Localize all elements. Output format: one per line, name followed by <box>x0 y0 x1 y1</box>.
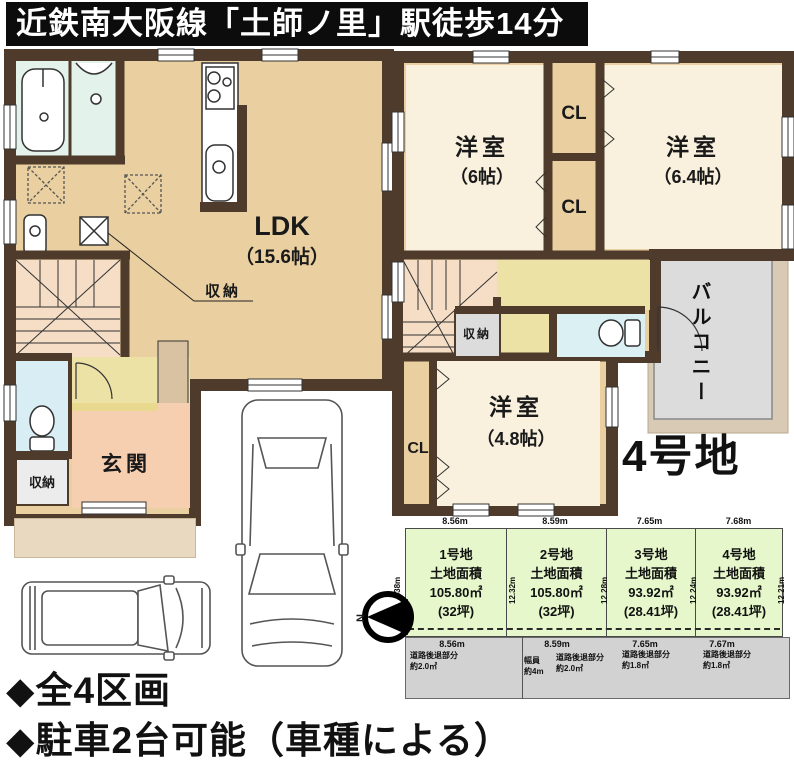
lot4-road-width: 7.67m <box>692 639 752 649</box>
lot1-front-width: 8.56m <box>405 516 505 527</box>
storage-label-2f: 収納 <box>463 326 491 341</box>
lot-map: 1号地 土地面積 105.80㎡ (32坪) 2号地 土地面積 105.80㎡ … <box>405 528 783 637</box>
lot3-road-width: 7.65m <box>615 639 675 649</box>
lot4-area-title: 土地面積 <box>713 567 765 580</box>
lot1-road-width: 8.56m <box>422 639 482 649</box>
lot2-name: 2号地 <box>540 548 573 561</box>
lot2-tsubo: (32坪) <box>538 605 574 618</box>
lot-1: 1号地 土地面積 105.80㎡ (32坪) <box>406 529 506 636</box>
compass-north-label: N <box>355 614 367 622</box>
ldk-size-label: （15.6帖） <box>235 245 329 268</box>
hall-2f <box>497 260 650 310</box>
entrance-storage-label: 収納 <box>29 475 55 490</box>
bathtub-icon <box>22 69 64 151</box>
lot3-depth: 12.24m <box>689 577 698 604</box>
balcony-label: バルコニー <box>684 264 714 422</box>
lot2-area: 105.80㎡ <box>530 586 583 599</box>
compass-icon: N <box>358 588 416 646</box>
toilet-icon <box>30 406 54 451</box>
bedroom-4-8-label: 洋室 <box>489 394 543 420</box>
closet-top-label: CL <box>561 103 587 124</box>
lot1-depth: 12.32m <box>508 577 517 604</box>
title-banner: 近鉄南大阪線「土師ノ里」駅徒歩14分 <box>6 2 588 46</box>
vanity-icon <box>24 215 46 255</box>
footer-parking-note: ◆駐車2台可能（車種による） <box>6 710 512 764</box>
lot1-tsubo: (32坪) <box>438 605 474 618</box>
lot4-tsubo: (28.41坪) <box>712 605 766 618</box>
car-vertical-icon <box>236 396 348 670</box>
lot3-tsubo: (28.41坪) <box>624 605 678 618</box>
kitchen-counter <box>200 63 242 207</box>
lot1-area-title: 土地面積 <box>430 567 482 580</box>
lot-4: 4号地 土地面積 93.92㎡ (28.41坪) <box>695 529 782 636</box>
toilet-2f-icon <box>599 320 640 346</box>
lot3-area-title: 土地面積 <box>625 567 677 580</box>
lot2-depth: 12.28m <box>600 577 609 604</box>
road-divider-line <box>522 637 523 699</box>
entrance-label: 玄関 <box>101 452 151 476</box>
footer-lot-count: ◆全4区画 <box>6 660 171 714</box>
closet-box-icon <box>80 217 108 245</box>
road-width-note: 幅員約4m <box>524 656 544 678</box>
lot3-setback: 道路後退部分約1.8㎡ <box>622 650 670 672</box>
bedroom-6-4-size: （6.4帖） <box>653 166 732 187</box>
lot2-front-width: 8.59m <box>505 516 605 527</box>
lot2-road-width: 8.59m <box>527 639 587 649</box>
closet-mid-label: CL <box>561 197 587 218</box>
lot3-front-width: 7.65m <box>605 516 694 527</box>
setback-dashed-line <box>408 628 780 630</box>
lot-2: 2号地 土地面積 105.80㎡ (32坪) <box>506 529 606 636</box>
bedroom-6-4-label: 洋室 <box>666 134 720 160</box>
lot-number-tag: 4号地 <box>622 420 740 484</box>
storage-label-1f: 収納 <box>205 282 241 300</box>
porch <box>14 518 196 558</box>
lot1-name: 1号地 <box>439 548 472 561</box>
lot3-area: 93.92㎡ <box>628 586 674 599</box>
lot4-front-width: 7.68m <box>694 516 783 527</box>
lot4-area: 93.92㎡ <box>716 586 762 599</box>
balcony <box>648 253 788 433</box>
lot2-setback: 道路後退部分約2.0㎡ <box>556 653 604 675</box>
lot3-name: 3号地 <box>634 548 667 561</box>
closet-left-label: CL <box>407 440 429 457</box>
car-horizontal-icon <box>18 576 214 660</box>
lot4-name: 4号地 <box>722 548 755 561</box>
lot4-setback: 道路後退部分約1.8㎡ <box>703 650 751 672</box>
bedroom-4-8-size: （4.8帖） <box>476 428 555 449</box>
stairs-icon <box>16 260 120 357</box>
lot4-depth: 12.21m <box>777 577 786 604</box>
lot1-area: 105.80㎡ <box>430 586 483 599</box>
lot1-setback: 道路後退部分約2.0㎡ <box>410 651 458 673</box>
lot2-area-title: 土地面積 <box>530 567 582 580</box>
lot-3: 3号地 土地面積 93.92㎡ (28.41坪) <box>606 529 695 636</box>
ldk-label: LDK <box>254 211 310 241</box>
bedroom-6-label: 洋室 <box>455 134 509 160</box>
flyer-page: 近鉄南大阪線「土師ノ里」駅徒歩14分 <box>0 0 794 768</box>
bedroom-6-size: （6帖） <box>450 166 514 187</box>
